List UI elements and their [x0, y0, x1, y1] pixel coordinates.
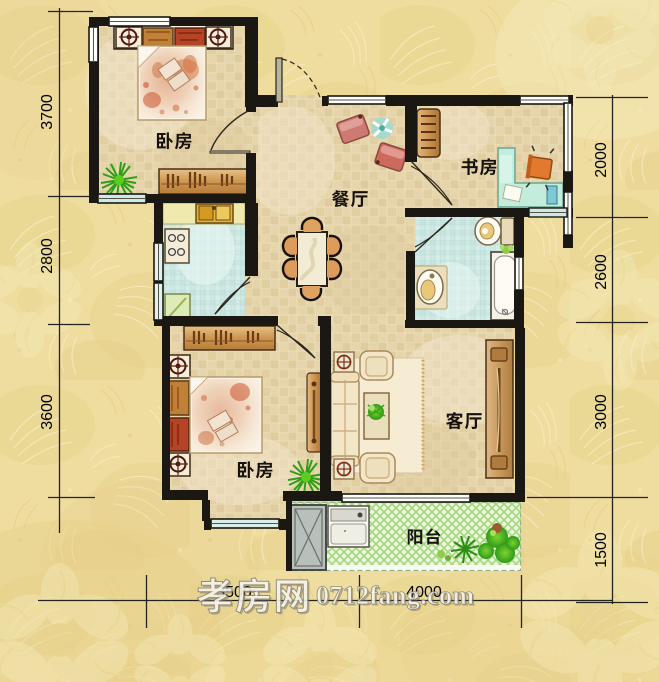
- svg-text:3700: 3700: [39, 94, 56, 130]
- svg-text:3600: 3600: [39, 394, 56, 430]
- svg-text:2600: 2600: [593, 254, 610, 290]
- svg-text:2000: 2000: [593, 142, 610, 178]
- svg-text:3000: 3000: [593, 394, 610, 430]
- svg-text:1500: 1500: [593, 532, 610, 568]
- svg-text:0712fang.com: 0712fang.com: [316, 581, 474, 610]
- svg-text:2800: 2800: [39, 238, 56, 274]
